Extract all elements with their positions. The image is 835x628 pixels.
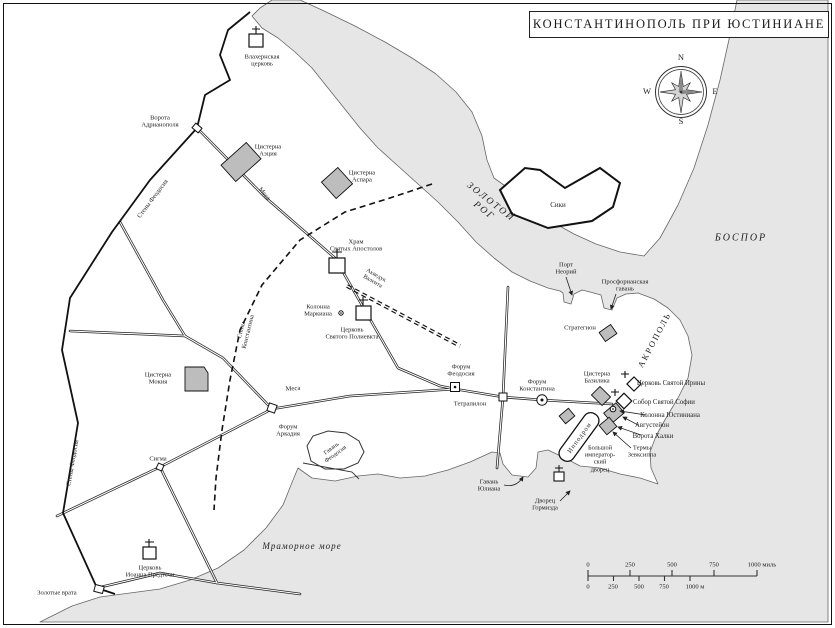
label-forum-theodosius: Форум Феодосия — [447, 364, 474, 379]
label-adrianople-gate: Ворота Адрианополя — [141, 115, 178, 130]
label-zeuxippus-baths: Термы Зевксиппа — [628, 445, 656, 460]
st-irene-cross-icon — [621, 371, 629, 378]
label-neorion-port: Порт Неорий — [555, 262, 576, 277]
label-polyeuktos-church: Церковь Святого Полиевкта — [325, 327, 378, 342]
scale-miles-500: 500 — [667, 561, 677, 568]
blachernae-church-icon — [249, 26, 263, 47]
label-hormisdas-palace: Дворец Гормизда — [532, 498, 558, 513]
label-strategion: Стратегион — [564, 324, 596, 331]
label-marcian-column: Колонна Маркиана — [304, 304, 332, 319]
label-prosphorion-harbor: Просфорианская гавань — [602, 279, 649, 294]
label-forum-constantine: Форум Константина — [519, 379, 555, 394]
label-st-sophia: Собор Святой Софии — [633, 399, 695, 407]
label-aetius-cistern: Цистерна Аэция — [255, 144, 281, 159]
label-mesa-main: Меса — [285, 385, 300, 393]
label-marmara-sea: Мраморное море — [262, 541, 341, 551]
john-baptist-church-icon — [143, 539, 156, 559]
scale-miles-250: 250 — [625, 561, 635, 568]
scale-meters-1000: 1000 м — [686, 583, 705, 590]
compass-south-label: S — [679, 117, 684, 127]
label-aspar-cistern: Цистерна Аспара — [349, 170, 375, 185]
map-title: КОНСТАНТИНОПОЛЬ ПРИ ЮСТИНИАНЕ — [529, 11, 829, 38]
label-forum-arcadius: Форум Аркадия — [276, 424, 300, 439]
label-tetrapylon: Тетрапилон — [454, 400, 487, 407]
theodosian-wall — [62, 12, 250, 594]
scale-miles-750: 750 — [709, 561, 719, 568]
label-augustaion: Августейон — [635, 422, 669, 430]
compass-east-label: E — [712, 87, 717, 97]
label-chalke-gate: Ворота Халки — [633, 433, 674, 441]
label-julian-harbor: Гавань Юлиана — [478, 479, 501, 494]
compass-north-label: N — [678, 53, 684, 63]
st-sophia-cross-icon — [611, 389, 619, 396]
scale-miles-1000: 1000 миль — [748, 561, 776, 568]
label-mocius-cistern: Цистерна Мокия — [145, 372, 171, 387]
label-bosporus: БОСПОР — [715, 232, 767, 243]
scale-meters-500: 500 — [634, 583, 644, 590]
label-sigma: Сигма — [149, 455, 166, 462]
compass-rose-icon — [656, 67, 707, 118]
constantinople-map — [0, 0, 835, 628]
label-basilica-cistern: Цистерна Базилика — [584, 371, 610, 386]
scale-meters-750: 750 — [659, 583, 669, 590]
label-golden-gate: Золотые врата — [37, 589, 76, 596]
scale-miles-0: 0 — [586, 561, 589, 568]
compass-west-label: W — [643, 87, 651, 97]
label-justinian-column: Колонна Юстиниана — [640, 412, 700, 420]
label-holy-apostles: Храм Святых Апостолов — [330, 239, 382, 254]
label-john-baptist-church: Церковь Иоанна Предтечи — [126, 565, 175, 580]
scale-meters-250: 250 — [608, 583, 618, 590]
label-blachernae-church: Влахернская церковь — [245, 54, 280, 69]
sea-water — [40, 0, 828, 622]
scale-meters-0: 0 — [586, 583, 589, 590]
label-great-palace: Большой император- ский дворец — [585, 445, 615, 474]
label-sykai: Сики — [550, 202, 566, 210]
label-st-irene: Церковь Святой Ирины — [637, 380, 705, 388]
